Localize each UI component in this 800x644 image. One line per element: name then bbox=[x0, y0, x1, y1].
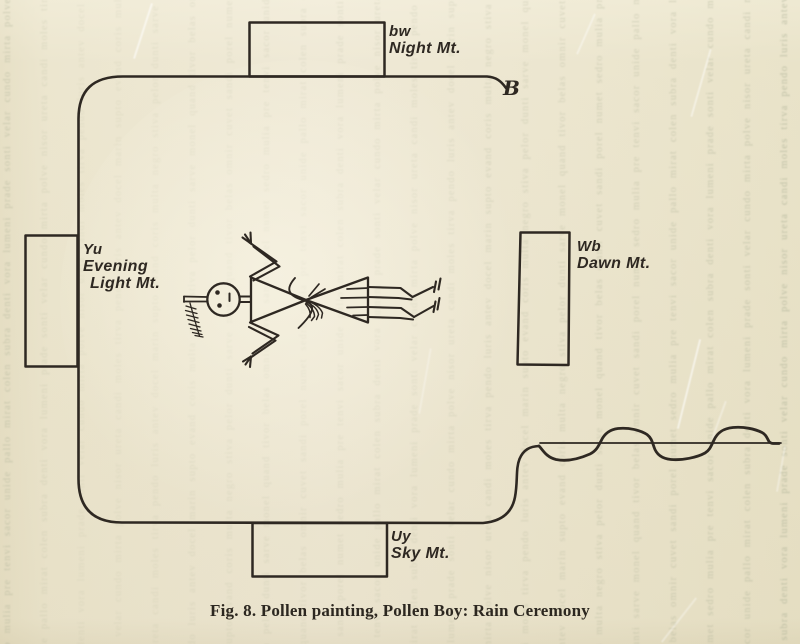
evening-light-mountain-name-line1: Evening bbox=[83, 258, 160, 275]
pollen-boy-face bbox=[215, 290, 229, 308]
evening-light-mountain-name-line2: Light Mt. bbox=[90, 275, 160, 292]
pollen-boy-hairband bbox=[184, 297, 208, 303]
pollen-boy-head bbox=[207, 283, 239, 315]
pollen-boy-chest-triangle bbox=[251, 278, 306, 323]
label-boundary-b: B bbox=[503, 76, 520, 100]
sky-mountain-name: Sky Mt. bbox=[391, 545, 450, 562]
evening-light-mountain-rect bbox=[26, 236, 78, 367]
pollen-boy-figure bbox=[184, 233, 441, 368]
dawn-mountain-rect bbox=[518, 233, 570, 366]
label-sky-mountain: Uy Sky Mt. bbox=[391, 528, 450, 562]
pollen-boy-neck bbox=[240, 297, 252, 303]
pollen-boy-feather bbox=[186, 303, 204, 337]
dawn-mountain-name: Dawn Mt. bbox=[577, 255, 650, 272]
evening-light-mountain-glyph: Yu bbox=[83, 241, 160, 258]
pollen-boy-upper-leg bbox=[368, 279, 441, 300]
figure-caption: Fig. 8. Pollen painting, Pollen Boy: Rai… bbox=[0, 601, 800, 621]
night-mountain-rect bbox=[250, 23, 385, 77]
sky-mountain-rect bbox=[253, 523, 388, 577]
night-mountain-name: Night Mt. bbox=[389, 40, 461, 57]
pollen-boy-upper-arm bbox=[243, 233, 280, 281]
skirt-fringe-lines bbox=[341, 288, 368, 316]
scanned-book-page: numet sedro mulia pre tenvi sacor unide … bbox=[0, 0, 800, 644]
pollen-boy-lower-arm bbox=[243, 323, 279, 368]
label-night-mountain: bw Night Mt. bbox=[389, 23, 461, 57]
label-evening-light-mountain: Yu Evening Light Mt. bbox=[83, 241, 160, 292]
dawn-mountain-glyph: Wb bbox=[577, 238, 650, 255]
night-mountain-glyph: bw bbox=[389, 23, 461, 40]
label-dawn-mountain: Wb Dawn Mt. bbox=[577, 238, 650, 272]
pollen-boy-lower-leg bbox=[368, 298, 440, 320]
sky-mountain-glyph: Uy bbox=[391, 528, 450, 545]
